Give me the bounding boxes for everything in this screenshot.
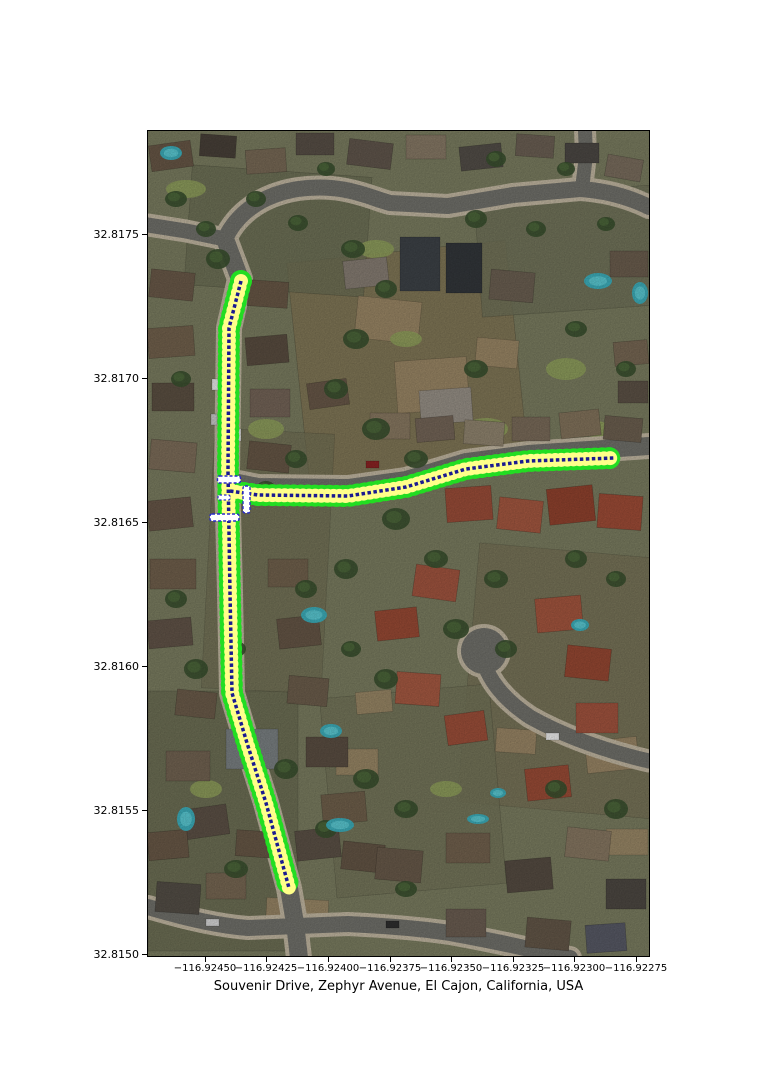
crossing-marker xyxy=(218,476,241,483)
map-plot-area xyxy=(147,130,650,957)
y-tick-label: 32.8170 xyxy=(77,372,139,385)
satellite-basemap xyxy=(148,131,649,956)
y-tick-label: 32.8175 xyxy=(77,228,139,241)
crossing-marker xyxy=(210,514,239,521)
crossing-marker xyxy=(218,495,230,500)
x-tick-label: −116.92275 xyxy=(596,962,676,975)
y-tick-label: 32.8165 xyxy=(77,516,139,529)
y-tick-label: 32.8150 xyxy=(77,948,139,961)
figure: 32.8175 32.8170 32.8165 32.8160 32.8155 … xyxy=(0,0,771,1080)
y-tick-label: 32.8155 xyxy=(77,804,139,817)
y-tick-label: 32.8160 xyxy=(77,660,139,673)
plot-title: Souvenir Drive, Zephyr Avenue, El Cajon,… xyxy=(147,979,650,995)
crossing-marker xyxy=(243,486,250,513)
